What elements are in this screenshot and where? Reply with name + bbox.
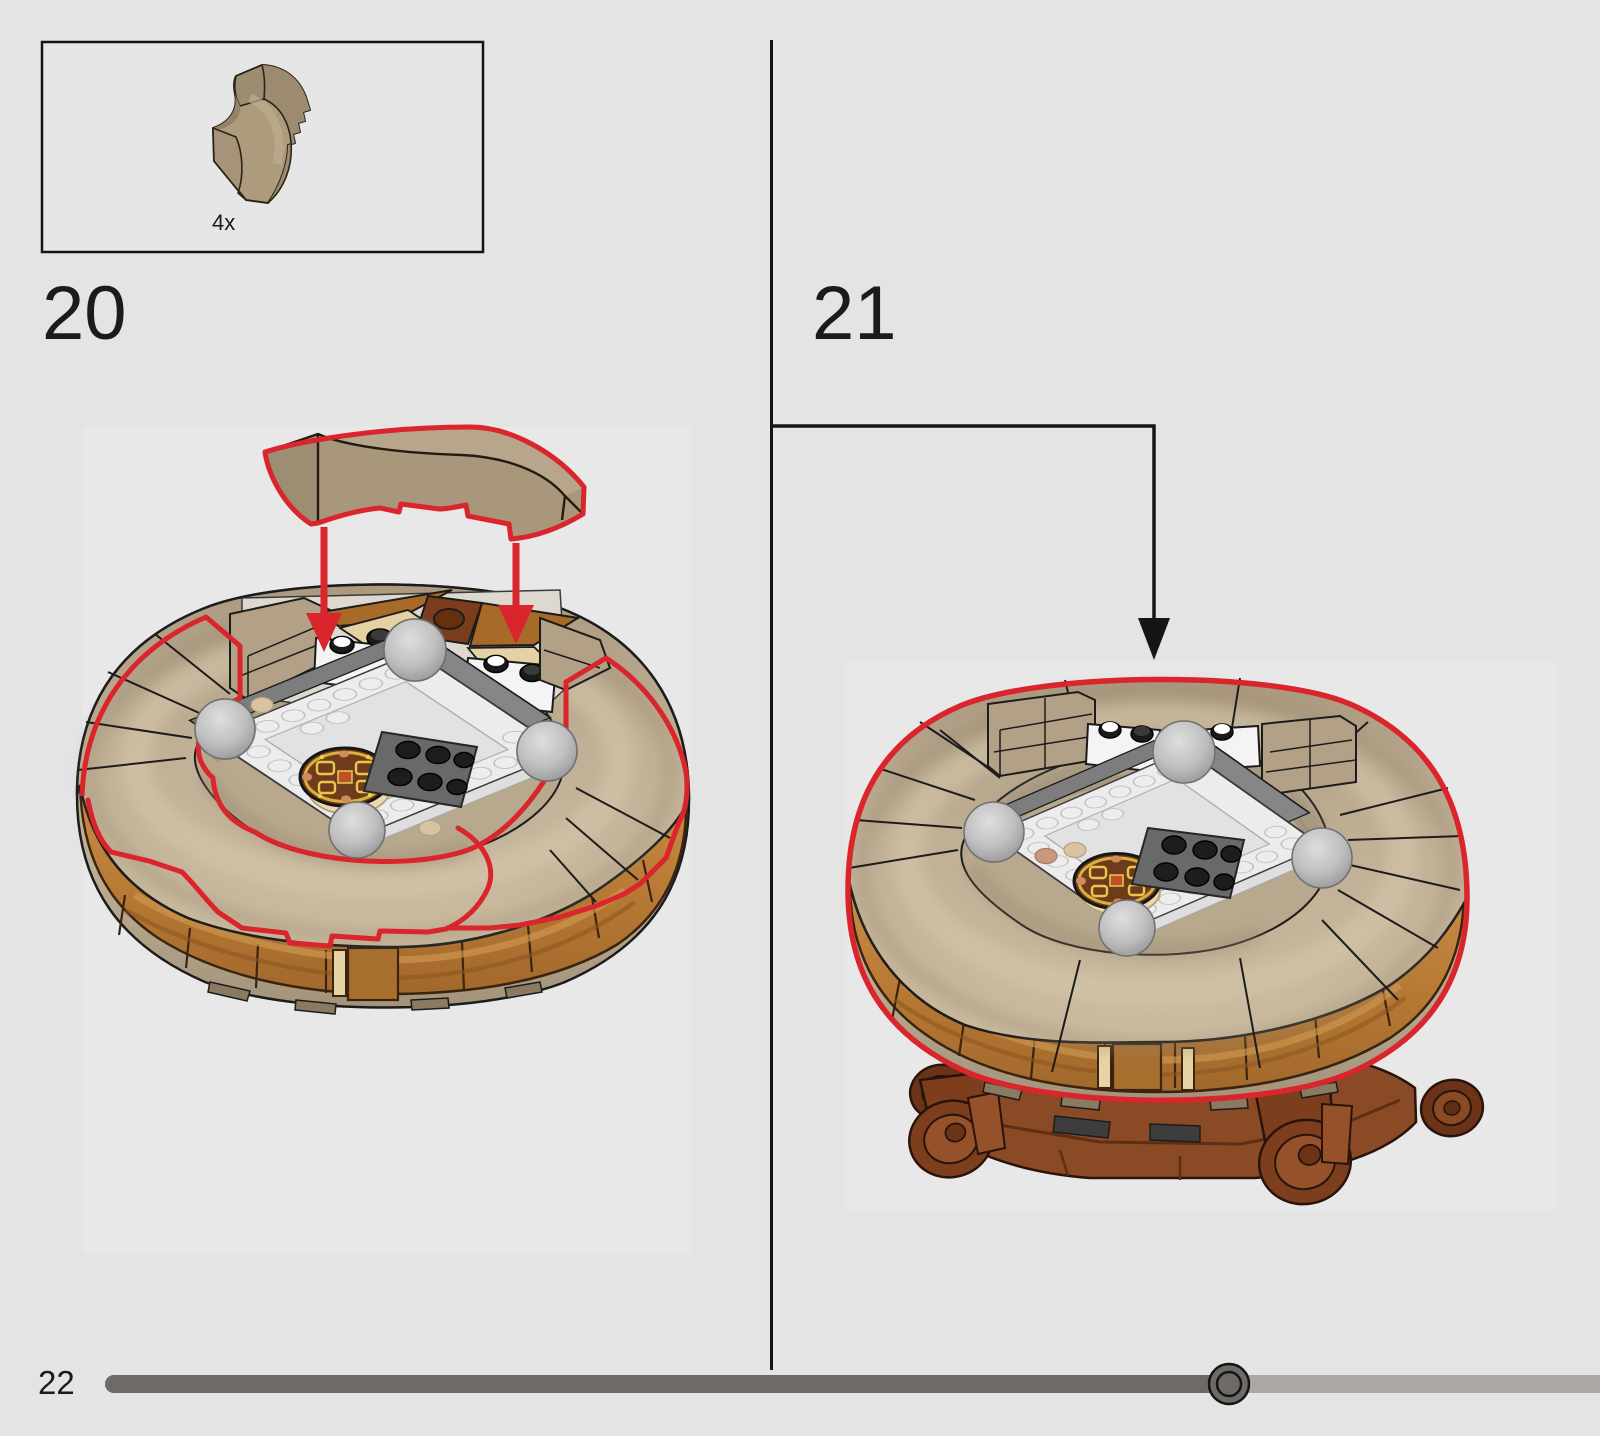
svg-text:4x: 4x — [212, 210, 235, 235]
svg-text:20: 20 — [42, 271, 127, 356]
svg-text:21: 21 — [812, 271, 897, 356]
svg-text:22: 22 — [38, 1364, 75, 1401]
